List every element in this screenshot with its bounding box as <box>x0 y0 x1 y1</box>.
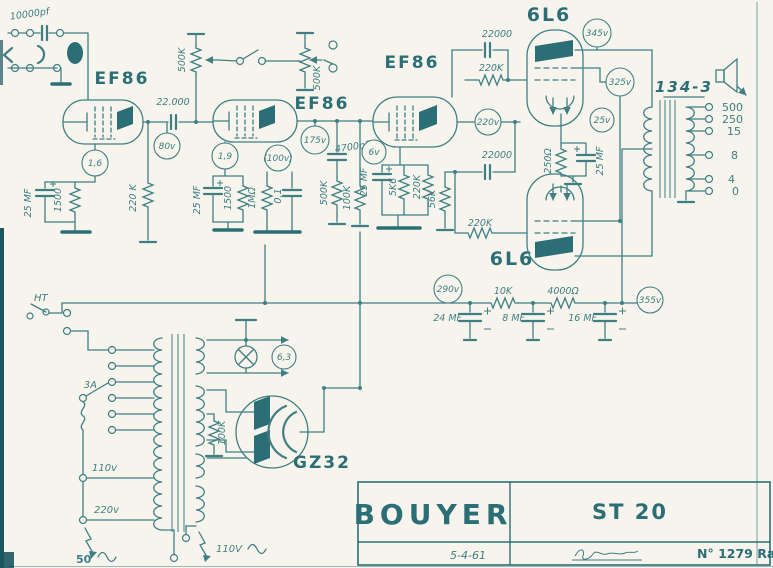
b-plus-rail: 10K 4000Ω 290v 355v 24 MF 8 MF <box>62 232 663 388</box>
v3-cathode-cap-label: 25 MF <box>359 167 370 196</box>
power-supply: HT <box>27 293 362 566</box>
cathode-bracket <box>546 96 574 109</box>
v1-cathode-res-label: 1500 <box>53 188 64 212</box>
schematic-sheet: 10000pf EF86 1,6 <box>0 0 773 568</box>
mains-selector <box>80 347 155 524</box>
tone-pot <box>332 178 342 208</box>
tap-110-label: 110v <box>92 463 118 474</box>
v1-cathode-voltage: 1,6 <box>88 159 103 169</box>
cathode-cap-label: 25 MF <box>595 146 606 175</box>
date: 5-4-61 <box>450 549 486 562</box>
tube-v2-label: EF86 <box>295 94 350 114</box>
res-top-label: 220K <box>479 63 504 74</box>
v3-cathode-voltage: 6v <box>368 148 380 158</box>
tap-220-label: 220v <box>94 505 120 516</box>
schematic-drawing: 10000pf EF86 1,6 <box>0 0 773 568</box>
tap-15: 15 <box>727 125 741 138</box>
signature <box>572 550 642 560</box>
input-transformer <box>67 42 83 64</box>
resistor-5k6 <box>399 172 409 202</box>
output-transformer-label: 134-3 <box>655 78 713 96</box>
title-block: BOUYER ST 20 5-4-61 N° 1279 Ra <box>354 482 773 565</box>
tube-v1-label: EF86 <box>95 69 150 89</box>
switch-lever <box>243 50 258 59</box>
ht-switch <box>27 313 33 319</box>
scan-edge-band <box>0 228 4 568</box>
anode-plate <box>535 40 573 62</box>
jack-terminal <box>329 41 337 49</box>
stage1: EF86 1,6 25 MF 1500 80v 22.000 <box>23 34 300 242</box>
filter-cap-24mf <box>459 301 491 340</box>
v2-tone-cap-label: 0,1 <box>273 188 284 203</box>
cap-top-label: 22000 <box>482 29 512 40</box>
input-jack <box>12 30 19 37</box>
input-section: 10000pf <box>4 6 88 100</box>
anode-plate <box>117 106 133 130</box>
volume-pot-label: 500K <box>177 47 188 72</box>
anode-plate <box>535 236 573 258</box>
screen-voltage: 325v <box>609 78 632 88</box>
driver-coupling: 22000 220K 22000 220K 56K <box>427 29 527 238</box>
v2-cathode-voltage: 1,9 <box>218 152 233 162</box>
res-56k-label: 56K <box>427 189 438 208</box>
tube-v4-label: 6L6 <box>527 4 572 26</box>
v1-grid-leak-label: 220 K <box>128 184 139 212</box>
cap-bottom-label: 22000 <box>482 150 512 161</box>
input-cap-label: 10000pf <box>9 6 51 23</box>
v3-tone-pot-label: 500K <box>319 180 330 205</box>
cap-24mf-label: 24 MF <box>433 313 462 324</box>
v1-cathode-cap-label: 25 MF <box>23 188 34 217</box>
cathode-res-label: 250Ω <box>543 148 554 174</box>
rectifier-label: GZ32 <box>293 453 351 473</box>
gain-pot-label: 500K <box>312 65 323 90</box>
tap-8: 8 <box>731 149 738 162</box>
v3-res220k-label: 220K <box>412 174 423 199</box>
bleeder-label: 100K <box>217 420 228 445</box>
cathode-res-250 <box>556 146 566 176</box>
power-stage: 6L6 345v 325v 25v 250Ω 25 MF <box>490 4 652 270</box>
resistor-1meg <box>262 183 272 213</box>
anode-plate <box>419 105 437 131</box>
res-10k-label: 10K <box>494 286 513 297</box>
resistor-10k <box>488 298 518 308</box>
fuse <box>81 402 84 474</box>
pilot-lamp-icon <box>235 346 257 368</box>
v1-coupling-cap-label: 22.000 <box>156 97 189 108</box>
speaker-icon <box>716 59 746 95</box>
v2-cathode-res-label: 1500 <box>223 186 234 210</box>
gain-pot <box>300 45 310 75</box>
grid-res-bottom <box>465 228 495 238</box>
fuse-label: 3A <box>84 380 97 391</box>
v3-grid-res-label: 100K <box>342 185 353 210</box>
microphone-icon <box>4 48 12 62</box>
v3-cathode-res-label: 5K6 <box>388 178 399 196</box>
v2-plate-voltage: 175v <box>304 136 327 146</box>
v4-plate-voltage: 345v <box>586 29 609 39</box>
tap-0: 0 <box>732 185 739 198</box>
output-transformer: 134-3 500 250 15 8 4 0 <box>622 59 746 303</box>
resistor-1500 <box>70 185 80 215</box>
v2-cathode-cap-label: 25 MF <box>192 185 203 214</box>
grid-res-top <box>476 75 506 85</box>
cap-8mf-label: 8 MF <box>502 313 525 324</box>
tube-v3-label: EF86 <box>385 53 440 73</box>
v3-plate-voltage: 220v <box>477 118 500 128</box>
ht-label: HT <box>34 293 49 304</box>
v1-plate-voltage: 80v <box>159 142 176 152</box>
rail-v-in: 290v <box>437 285 460 295</box>
res-bottom-label: 220K <box>468 218 493 229</box>
mains-freq-label: 50 <box>76 553 92 566</box>
rail-v-out: 355v <box>639 296 662 306</box>
drawing-ref: N° 1279 Ra <box>697 546 773 561</box>
stage3: EF86 500K 100K 6v 25 MF 5 <box>319 50 520 228</box>
cathode-bracket <box>546 187 574 200</box>
res-4000-label: 4000Ω <box>547 286 579 297</box>
switch-contact <box>237 58 244 65</box>
pilot-voltage: 6,3 <box>277 353 292 363</box>
anode-plate <box>259 105 275 129</box>
brand-name: BOUYER <box>354 498 513 531</box>
filter-cap-16mf <box>594 301 626 340</box>
cathode-voltage: 25v <box>594 116 611 126</box>
v2-screen-voltage: (100v) <box>263 154 293 164</box>
power-transformer <box>154 334 205 532</box>
resistor-4000 <box>548 298 578 308</box>
volume-pot <box>191 45 201 75</box>
resistor-56k <box>440 184 450 214</box>
model-name: ST 20 <box>592 500 668 524</box>
resistor-220k <box>143 180 153 210</box>
filter-cap-8mf <box>522 301 554 340</box>
aux-label: 110V <box>216 544 243 555</box>
v2-load-res-label: 1MΩ <box>247 187 258 209</box>
cap-16mf-label: 16 MF <box>568 313 597 324</box>
